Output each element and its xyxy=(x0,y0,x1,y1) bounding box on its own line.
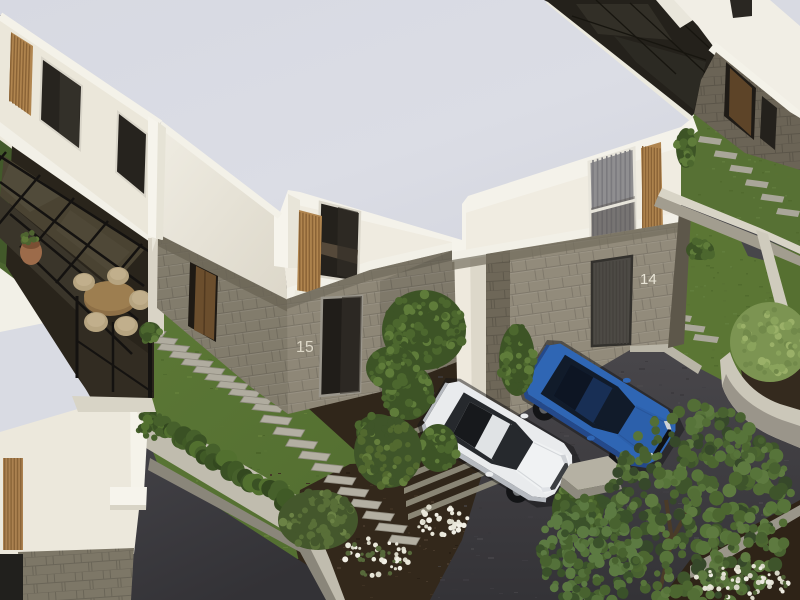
svg-text:14: 14 xyxy=(640,271,657,288)
svg-text:15: 15 xyxy=(296,339,314,356)
